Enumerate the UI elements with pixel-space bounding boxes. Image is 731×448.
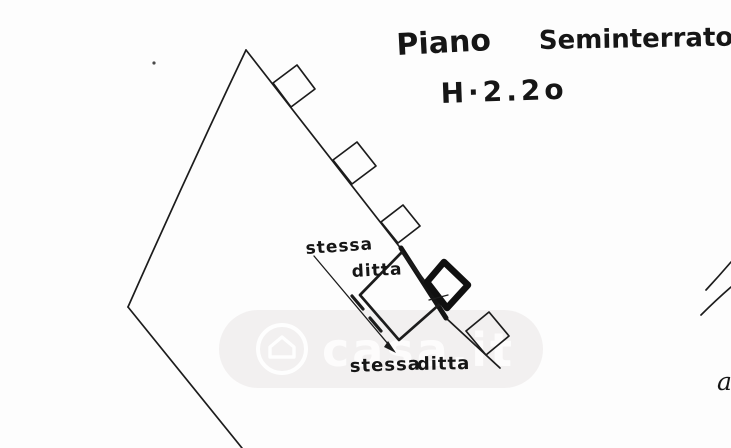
edge-slash-1 [706, 262, 731, 290]
annotation-stessa-lower: stessa [349, 354, 421, 377]
parcel-left-edge [128, 50, 246, 307]
ink-speck [152, 61, 155, 64]
clipped-letter-right-edge: a [717, 367, 731, 396]
opening-square-3 [381, 205, 420, 243]
annotation-ditta-upper: ditta [351, 259, 403, 282]
plan-height-label: H·2.2o [440, 73, 568, 110]
opening-square-2 [333, 142, 376, 184]
edge-slash-2 [701, 287, 731, 315]
parcel-bottom-edge [128, 307, 242, 448]
annotation-stessa-upper: stessa [305, 234, 374, 259]
parcel-diagonal-upper [246, 50, 402, 250]
plan-title-word-1: Piano [396, 23, 492, 63]
annotation-ditta-lower: ditta [417, 353, 471, 375]
plan-title-word-2: Seminterrato [539, 23, 731, 56]
scanned-floor-plan: casa.it Piano Seminterrato H·2.2o [0, 0, 731, 448]
floor-plan-drawing: casa.it Piano Seminterrato H·2.2o [0, 0, 731, 448]
opening-square-1 [273, 65, 315, 107]
